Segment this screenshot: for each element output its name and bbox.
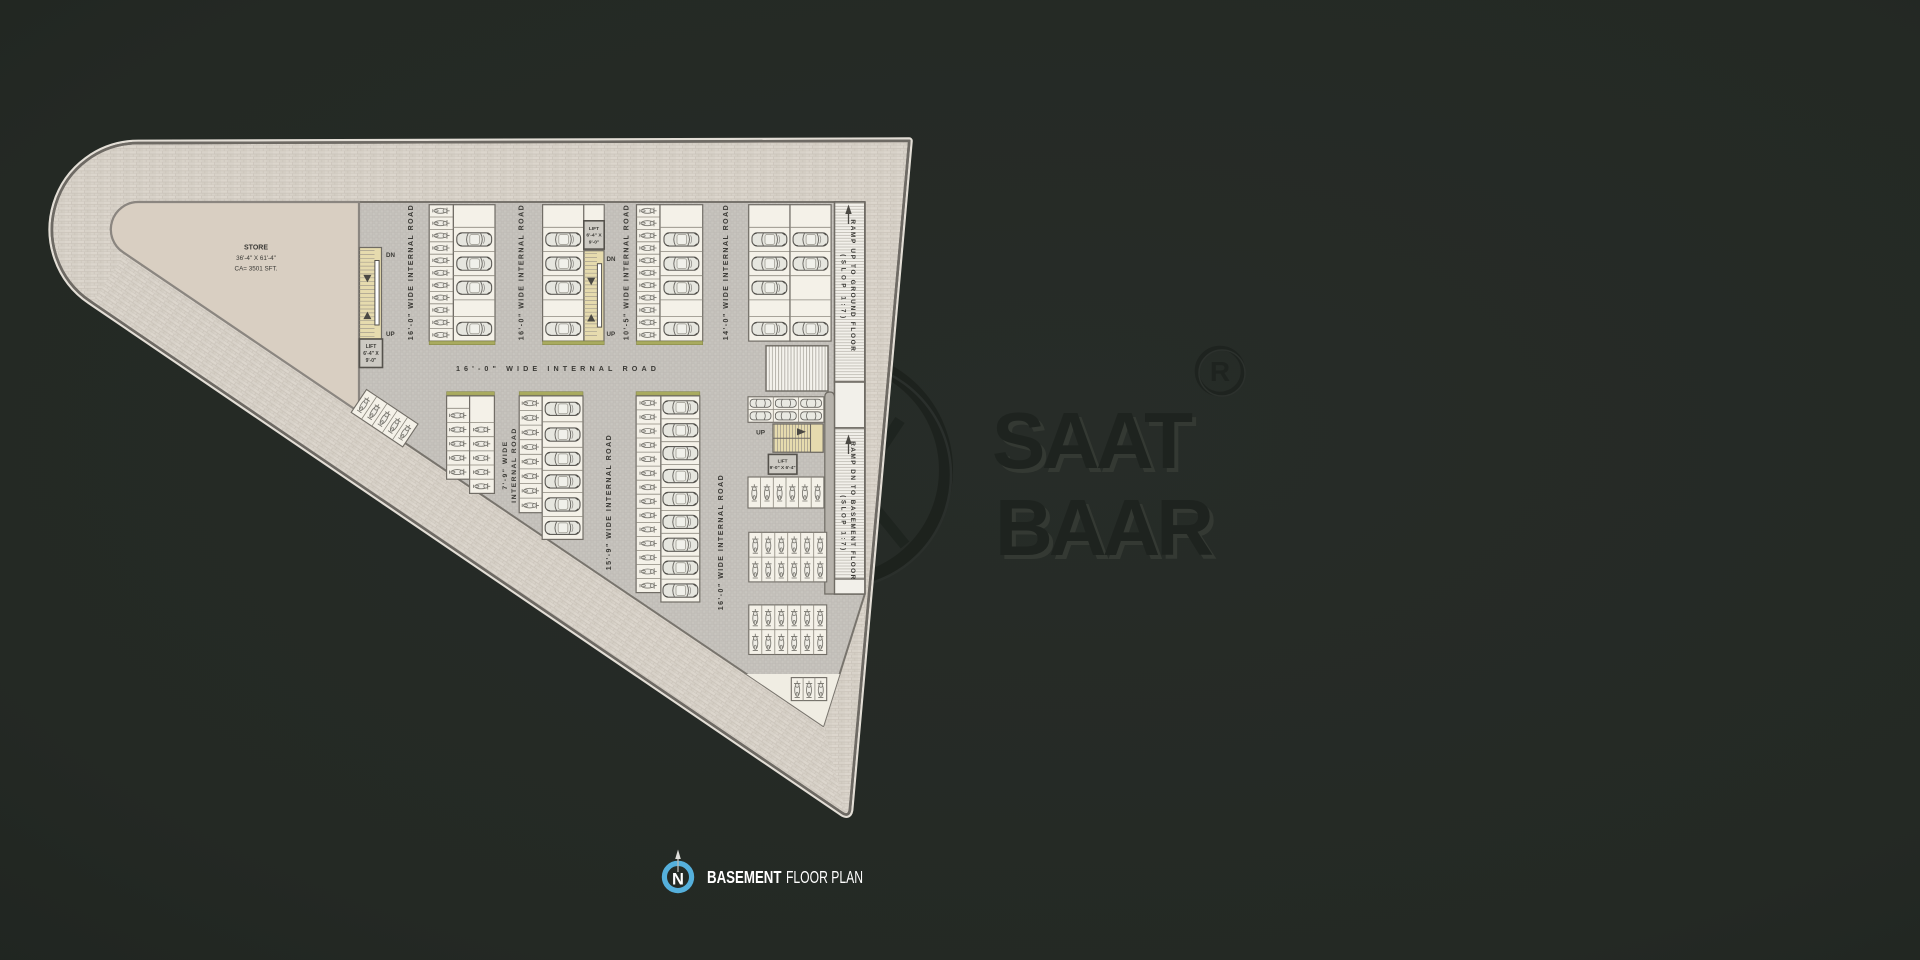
svg-text:RAMP DN TO BASEMENT FLOOR: RAMP DN TO BASEMENT FLOOR <box>849 441 856 581</box>
svg-text:UP: UP <box>386 331 395 338</box>
svg-text:INTERNAL ROAD: INTERNAL ROAD <box>511 427 518 503</box>
svg-text:9'-0": 9'-0" <box>366 358 377 364</box>
svg-text:16'-0" WIDE INTERNAL ROAD: 16'-0" WIDE INTERNAL ROAD <box>718 474 725 610</box>
svg-text:UP: UP <box>607 331 616 338</box>
svg-text:LIFT: LIFT <box>366 344 377 350</box>
svg-text:UP: UP <box>756 430 766 437</box>
svg-text:BASEMENT: BASEMENT <box>707 867 782 887</box>
svg-text:15'-9" WIDE INTERNAL ROAD: 15'-9" WIDE INTERNAL ROAD <box>606 434 613 570</box>
svg-text:(SLOP 1:7): (SLOP 1:7) <box>839 254 846 322</box>
svg-text:14'-0" WIDE INTERNAL ROAD: 14'-0" WIDE INTERNAL ROAD <box>723 204 730 340</box>
svg-text:10'-5" WIDE INTERNAL ROAD: 10'-5" WIDE INTERNAL ROAD <box>624 204 631 340</box>
svg-text:7'-9" WIDE: 7'-9" WIDE <box>502 440 509 489</box>
svg-text:BAAR: BAAR <box>995 483 1216 572</box>
svg-text:6'-4" X: 6'-4" X <box>586 233 602 239</box>
svg-text:16'-0" WIDE INTERNAL ROAD: 16'-0" WIDE INTERNAL ROAD <box>456 364 660 373</box>
svg-text:STORE: STORE <box>244 245 268 252</box>
svg-text:6'-4" X: 6'-4" X <box>363 351 379 357</box>
svg-text:16'-0" WIDE INTERNAL ROAD: 16'-0" WIDE INTERNAL ROAD <box>518 204 525 340</box>
svg-text:9'-0" X 6'-4": 9'-0" X 6'-4" <box>770 465 796 470</box>
svg-text:(SLOP 1:7): (SLOP 1:7) <box>839 495 846 553</box>
svg-text:SAAT: SAAT <box>992 396 1195 485</box>
svg-text:R: R <box>1210 356 1230 387</box>
svg-text:9'-0": 9'-0" <box>589 239 600 245</box>
svg-text:FLOOR PLAN: FLOOR PLAN <box>786 867 863 887</box>
svg-text:LIFT: LIFT <box>778 459 788 464</box>
svg-text:LIFT: LIFT <box>589 226 599 232</box>
svg-text:N: N <box>672 871 684 889</box>
svg-text:16'-0" WIDE INTERNAL ROAD: 16'-0" WIDE INTERNAL ROAD <box>408 204 415 340</box>
svg-text:DN: DN <box>386 252 395 259</box>
svg-text:CA= 3501 SFT.: CA= 3501 SFT. <box>235 266 278 273</box>
svg-text:DN: DN <box>607 256 616 263</box>
svg-text:36'-4" X 61'-4": 36'-4" X 61'-4" <box>236 255 276 262</box>
svg-text:RAMP UP TO GROUND FLOOR: RAMP UP TO GROUND FLOOR <box>849 219 856 352</box>
